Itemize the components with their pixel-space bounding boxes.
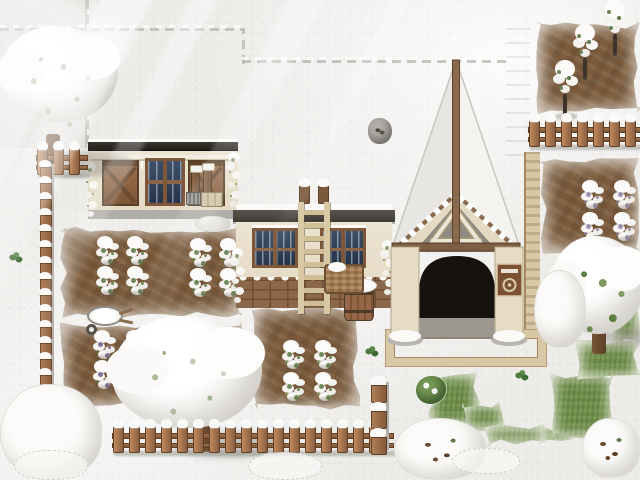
fence-post — [353, 423, 364, 453]
ladder-finial — [318, 184, 329, 204]
crop-leaves — [194, 250, 199, 255]
fence-post — [370, 428, 386, 454]
fence-left — [38, 160, 54, 408]
sapling-trunk — [613, 34, 617, 56]
fence-post — [39, 288, 51, 305]
fence-post — [561, 117, 572, 147]
fence-post — [39, 336, 51, 353]
crop-leaves — [194, 280, 199, 285]
fence-post — [39, 272, 51, 289]
fence-post — [39, 176, 51, 193]
sprig-prop — [8, 252, 24, 264]
fence-post — [39, 304, 51, 321]
snow-covered-crop-twist — [311, 336, 341, 372]
crop-leaves — [319, 352, 324, 357]
snow-vine — [378, 240, 396, 296]
terrain-ledge — [242, 60, 508, 63]
farmhouse-window-left — [252, 228, 298, 268]
snow-mound — [452, 448, 520, 474]
rock-prop — [368, 118, 392, 144]
fence-post — [321, 423, 332, 453]
fence-post — [39, 240, 51, 257]
barn-entrance[interactable] — [419, 256, 495, 318]
fence-post — [225, 423, 236, 453]
crop-leaves — [131, 248, 136, 253]
snow-covered-crop-stalk — [186, 264, 216, 300]
fence-bottom — [112, 420, 394, 456]
fence-post — [209, 423, 220, 453]
crop-leaves — [101, 278, 106, 283]
snow-mound — [14, 450, 88, 480]
fence-post — [39, 256, 51, 273]
tree-speckles — [14, 40, 104, 149]
snow-mound — [582, 418, 640, 478]
crop-leaves — [98, 372, 103, 377]
crop-leaves — [586, 224, 591, 229]
ladder-rungs — [298, 202, 330, 314]
crop-leaves — [618, 224, 623, 229]
snow-covered-crop-bush — [93, 262, 123, 298]
fence-post — [370, 376, 386, 402]
fence-post — [177, 423, 188, 453]
stone-wall — [506, 26, 530, 156]
stable-window — [145, 158, 185, 206]
crop-leaves — [101, 248, 106, 253]
snow-covered-crop-caps — [578, 176, 608, 212]
fence-post — [39, 320, 51, 337]
sapling-leaves — [577, 34, 581, 38]
ladder-finial — [299, 184, 310, 204]
fence-post — [593, 117, 604, 147]
fence-post — [337, 423, 348, 453]
snow-covered-crop-twist — [279, 336, 309, 372]
fence-post — [625, 117, 636, 147]
fence-post — [241, 423, 252, 453]
fence-post — [39, 208, 51, 225]
fence-post — [39, 224, 51, 241]
crop-leaves — [287, 384, 292, 389]
snow-mound — [248, 452, 322, 480]
wheelbarrow-wheel — [86, 324, 97, 335]
crop-leaves — [98, 342, 103, 347]
fence-post — [529, 117, 540, 147]
snow-covered-crop-bush — [123, 262, 153, 298]
roof-ladder[interactable] — [296, 182, 332, 316]
snow-covered-crop-twist — [311, 368, 341, 404]
snowy-sapling — [548, 60, 582, 120]
fence-post — [53, 145, 64, 175]
fence-bottom-stub — [370, 376, 390, 454]
snow-vine — [224, 152, 242, 208]
snow-covered-crop-twist — [279, 368, 309, 404]
fence-post — [39, 192, 51, 209]
game-viewport[interactable] — [0, 0, 640, 480]
basket-prop — [324, 264, 364, 294]
crop-leaves — [131, 278, 136, 283]
snowy-sapling — [598, 0, 632, 60]
fence-post — [69, 145, 80, 175]
fence-post — [113, 423, 124, 453]
crop-leaves — [287, 352, 292, 357]
barn-foundation-skirt — [386, 330, 546, 366]
crop-leaves — [618, 192, 623, 197]
fence-post — [305, 423, 316, 453]
fence-post — [39, 160, 51, 177]
snow-covered-crop-caps — [610, 176, 640, 212]
fence-post — [39, 352, 51, 369]
fence-post — [161, 423, 172, 453]
fence-post — [609, 117, 620, 147]
sapling-trunk — [583, 58, 587, 80]
crate-icon — [201, 192, 223, 207]
wheelbarrow-handle — [119, 308, 133, 315]
fence-post — [129, 423, 140, 453]
fence-post — [39, 368, 51, 385]
snow-mound — [195, 216, 231, 232]
crop-leaves — [586, 192, 591, 197]
fence-post — [289, 423, 300, 453]
snow-mound — [534, 270, 586, 348]
fence-right — [528, 114, 640, 150]
fence-post — [273, 423, 284, 453]
sprig-prop — [364, 346, 380, 358]
fence-post — [257, 423, 268, 453]
fence-post — [193, 423, 204, 453]
fence-post — [370, 402, 386, 428]
sprig-prop — [514, 370, 530, 382]
crop-leaves — [319, 384, 324, 389]
sapling-leaves — [557, 70, 561, 74]
fence-post — [145, 423, 156, 453]
snow-vine — [228, 248, 246, 304]
fence-post — [545, 117, 556, 147]
fence-post — [577, 117, 588, 147]
sapling-leaves — [607, 10, 611, 14]
leafbush-prop — [416, 376, 446, 404]
rake-head-icon — [186, 192, 201, 205]
